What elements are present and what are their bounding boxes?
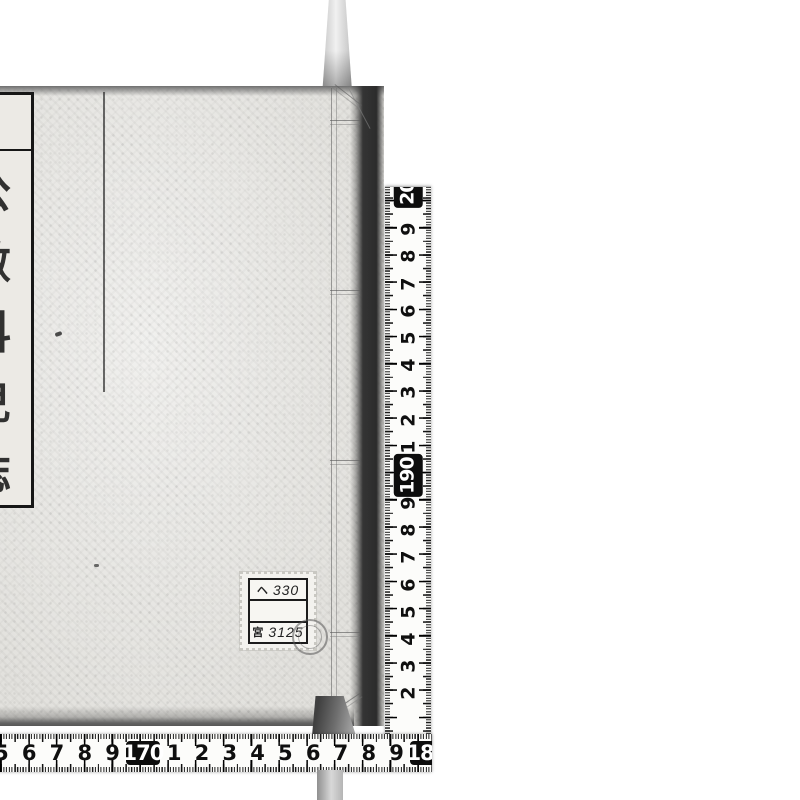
cover-rule-line xyxy=(103,92,105,392)
title-slip: 學務 公數科兒誌 xyxy=(0,92,34,508)
horizontal-tape-numbers: 56789170123456789180 xyxy=(0,734,432,772)
title-slip-char: 科 xyxy=(0,297,11,361)
tape-number: 1 xyxy=(394,441,421,453)
binding-stitch xyxy=(330,120,360,125)
tape-number: 6 xyxy=(394,579,421,591)
tape-number: 4 xyxy=(394,360,421,372)
tape-number: 170 xyxy=(126,741,160,765)
binding-stitch xyxy=(330,632,360,637)
tape-number: 3 xyxy=(215,741,243,765)
horizontal-measuring-tape: 56789170123456789180 xyxy=(0,734,432,772)
vertical-tape-numbers: 20098765432119098765432 xyxy=(396,187,420,708)
tape-number: 1 xyxy=(160,741,188,765)
title-slip-char: 公 xyxy=(0,156,11,220)
title-slip-header: 學務 xyxy=(0,95,31,151)
tape-number: 3 xyxy=(394,387,421,399)
tape-number: 6 xyxy=(15,741,43,765)
book-top-edge xyxy=(0,86,384,96)
binding-stitch xyxy=(330,290,360,295)
tape-number: 2 xyxy=(394,414,421,426)
tape-number: 7 xyxy=(43,741,71,765)
book-spine-shadow xyxy=(350,86,384,726)
call-number-value: 330 xyxy=(273,582,299,598)
tape-ribbon-top xyxy=(322,0,353,92)
tape-number: 7 xyxy=(394,278,421,290)
tape-number: 7 xyxy=(327,741,355,765)
call-number-row-1: ヘ 330 xyxy=(250,580,306,599)
call-number-prefix: ヘ xyxy=(257,582,268,598)
tape-number: 4 xyxy=(394,633,421,645)
tape-number: 5 xyxy=(271,741,299,765)
book-cover: 學務 公數科兒誌 ヘ 330 宮 3125 xyxy=(0,86,384,726)
tape-number: 8 xyxy=(70,741,98,765)
title-slip-char: 誌 xyxy=(0,438,11,502)
tape-number: 4 xyxy=(243,741,271,765)
scan-canvas: 學務 公數科兒誌 ヘ 330 宮 3125 xyxy=(0,0,800,800)
tape-number: 9 xyxy=(394,498,421,510)
tape-number: 8 xyxy=(354,741,382,765)
tape-number: 9 xyxy=(394,224,421,236)
cover-blemish xyxy=(94,564,99,567)
tape-number: 5 xyxy=(394,606,421,618)
tape-number: 3 xyxy=(394,661,421,673)
tape-number: 8 xyxy=(394,525,421,537)
tape-number: 180 xyxy=(410,741,432,765)
call-number-row-2 xyxy=(250,599,306,620)
binding-stitch xyxy=(330,460,360,465)
title-slip-char: 數 xyxy=(0,227,11,291)
library-stamp-icon xyxy=(292,619,328,655)
tape-number: 7 xyxy=(394,552,421,564)
book-bottom-edge xyxy=(0,706,354,726)
tape-number: 2 xyxy=(394,688,421,700)
tape-number: 2 xyxy=(188,741,216,765)
tape-number: 6 xyxy=(394,305,421,317)
call-number-label: ヘ 330 宮 3125 xyxy=(240,572,316,650)
tape-number: 8 xyxy=(394,251,421,263)
vertical-measuring-tape: 20098765432119098765432 xyxy=(385,186,431,747)
tape-ribbon-bottom xyxy=(317,770,343,800)
title-slip-char: 兒 xyxy=(0,367,11,431)
tape-number: 5 xyxy=(0,741,15,765)
title-slip-characters: 公數科兒誌 xyxy=(0,153,31,505)
tape-number: 5 xyxy=(394,332,421,344)
binding-thread-vertical xyxy=(331,88,337,722)
tape-number: 6 xyxy=(299,741,327,765)
cover-blemish xyxy=(55,331,63,337)
tape-number: 190 xyxy=(393,454,422,497)
tape-number: 200 xyxy=(393,186,422,208)
call-number-prefix: 宮 xyxy=(252,624,263,640)
